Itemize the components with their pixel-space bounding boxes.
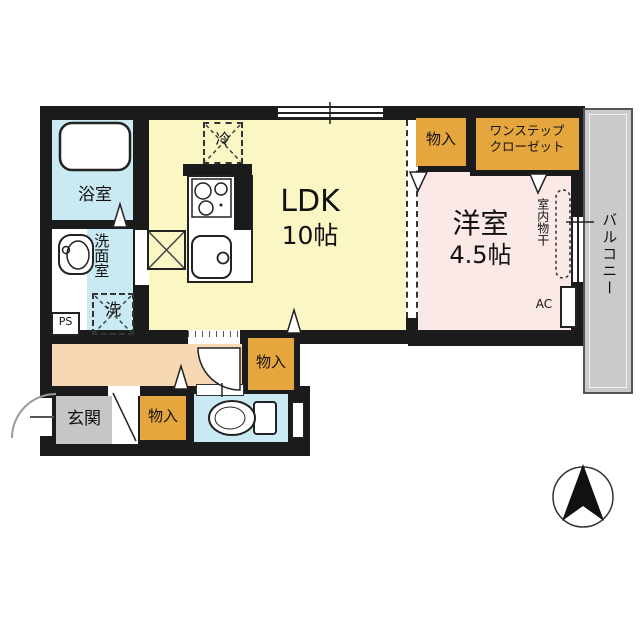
ldk-hatch-box <box>147 230 186 270</box>
ac-unit-box <box>560 286 577 328</box>
label-ldk-size: 10帖 <box>240 222 380 251</box>
label-western: 洋室 <box>418 208 543 240</box>
label-ps: PS <box>51 316 80 329</box>
hall-door-arc <box>198 348 240 390</box>
floor-plan: 浴室 洗面室 洗 PS 冷 LDK 10帖 物入 ワンステップ クローゼット 洋… <box>0 0 640 640</box>
label-closet-line1: ワンステップ <box>474 124 580 138</box>
toilet-icon <box>209 401 276 435</box>
indoor-drying-line <box>556 190 570 278</box>
closet-door-marker <box>530 174 547 193</box>
north-compass-icon <box>553 464 613 527</box>
bathroom-door-marker <box>113 204 127 227</box>
label-storage-hall: 物入 <box>246 354 296 371</box>
label-washroom: 洗面室 <box>92 233 109 278</box>
label-storage-entry: 物入 <box>138 408 188 425</box>
label-entrance: 玄関 <box>56 410 112 430</box>
storage-top-door-marker <box>410 172 427 191</box>
label-western-size: 4.5帖 <box>418 242 543 270</box>
shoe-step-diagonal <box>113 393 136 441</box>
label-bathroom: 浴室 <box>60 186 130 206</box>
label-ac: AC <box>530 298 558 312</box>
label-washer: 洗 <box>92 301 134 319</box>
label-indoor-drying: 室内物干 <box>535 198 549 246</box>
label-closet-line2: クローゼット <box>474 140 580 154</box>
label-fridge: 冷 <box>203 131 243 148</box>
bathtub-icon <box>60 123 130 170</box>
label-ldk: LDK <box>240 185 380 220</box>
ldk-door-marker <box>287 310 301 333</box>
label-balcony: バルコニー <box>600 212 617 297</box>
label-storage-top: 物入 <box>414 131 468 148</box>
wash-basin-icon <box>59 235 93 274</box>
hall-door-marker <box>174 366 188 389</box>
